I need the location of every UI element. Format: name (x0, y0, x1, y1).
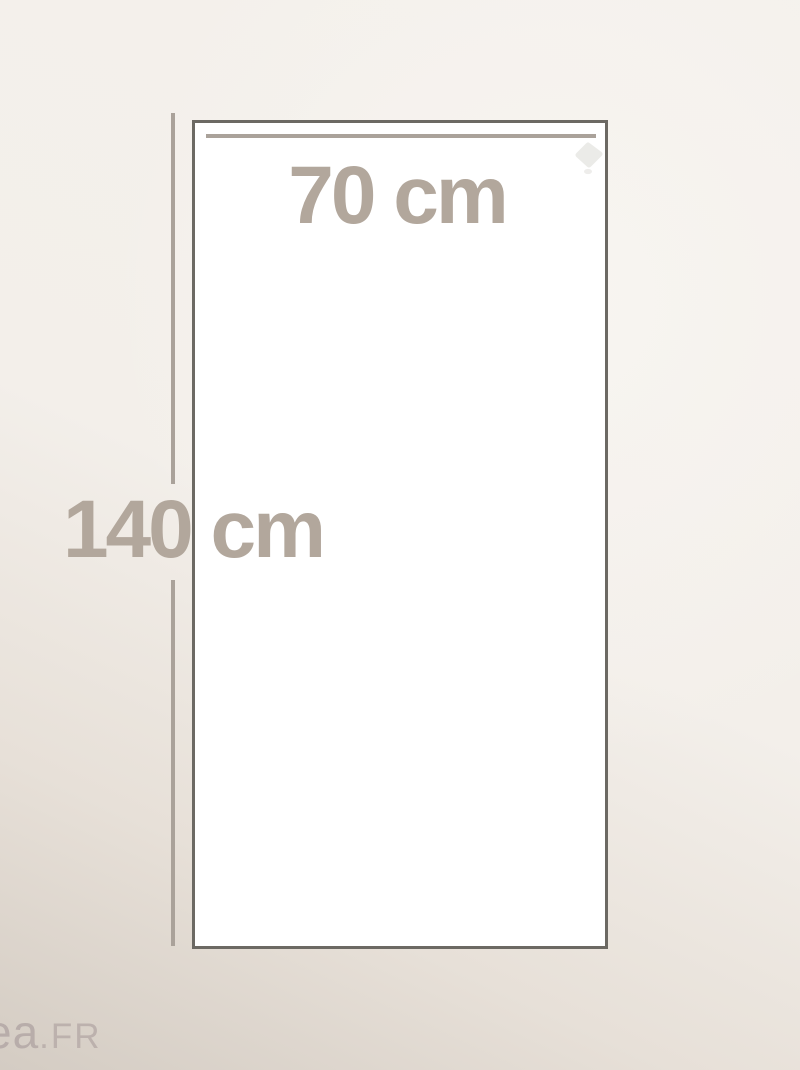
height-measure-line-lower (171, 580, 175, 946)
width-measure-line (206, 134, 596, 138)
site-watermark: ea.FR (0, 1005, 102, 1059)
site-watermark-name: ea (0, 1006, 39, 1058)
height-measure-line-upper (171, 113, 175, 484)
product-dimension-diagram: 70 cm 140 cm ea.FR (0, 0, 800, 1070)
width-dimension-label: 70 cm (192, 155, 602, 237)
height-dimension-label: 140 cm (63, 489, 323, 571)
site-watermark-tld: .FR (39, 1017, 101, 1056)
